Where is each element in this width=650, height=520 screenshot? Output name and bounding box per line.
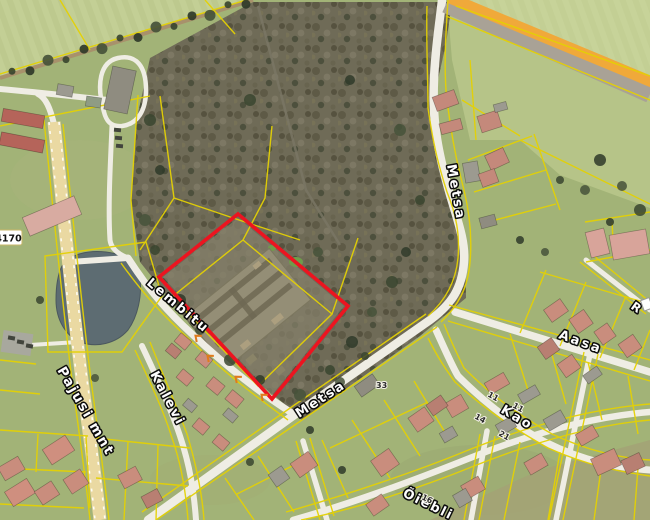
tree — [150, 245, 160, 255]
building — [462, 161, 480, 183]
tree — [36, 296, 44, 304]
car — [116, 144, 123, 149]
tree — [155, 165, 165, 175]
car — [114, 128, 121, 133]
tree — [80, 45, 89, 54]
tree — [242, 0, 251, 9]
tree — [580, 185, 590, 195]
tree — [244, 94, 256, 106]
car — [115, 136, 122, 141]
tree — [91, 374, 99, 382]
tree — [345, 75, 355, 85]
building — [56, 84, 74, 98]
tree — [338, 466, 346, 474]
tree — [294, 389, 306, 401]
tree — [246, 458, 254, 466]
tree — [415, 195, 425, 205]
tree — [556, 176, 564, 184]
tree — [188, 11, 197, 20]
road-number-text: 4170 — [0, 234, 22, 245]
tree — [63, 56, 70, 63]
tree — [634, 204, 646, 216]
tree — [306, 426, 314, 434]
tree — [386, 276, 398, 288]
tree — [225, 1, 232, 8]
tree — [171, 23, 178, 30]
map-viewport[interactable]: Lembitu Kalevi Metsa Metsa Aasa Kao Paju… — [0, 0, 650, 520]
tree — [346, 336, 358, 348]
building — [85, 96, 101, 108]
tree — [361, 352, 369, 360]
tree — [394, 124, 406, 136]
tree — [325, 365, 335, 375]
tree — [516, 236, 524, 244]
house-number: 33 — [376, 381, 387, 390]
tree — [205, 10, 216, 21]
tree — [43, 55, 54, 66]
tree — [401, 247, 411, 257]
road-number-badge: 4170 — [0, 230, 22, 245]
tree — [313, 247, 323, 257]
tree — [594, 154, 606, 166]
aerial-map-svg[interactable]: Lembitu Kalevi Metsa Metsa Aasa Kao Paju… — [0, 0, 650, 520]
tree — [97, 43, 108, 54]
road-service — [70, 258, 128, 262]
tree — [139, 214, 151, 226]
tree — [144, 114, 156, 126]
tree — [606, 218, 614, 226]
tree — [26, 66, 35, 75]
tree — [367, 307, 377, 317]
tree — [9, 68, 16, 75]
tree — [117, 35, 124, 42]
tree — [617, 181, 627, 191]
tree — [134, 33, 143, 42]
tree — [151, 21, 162, 32]
tree — [541, 248, 549, 256]
